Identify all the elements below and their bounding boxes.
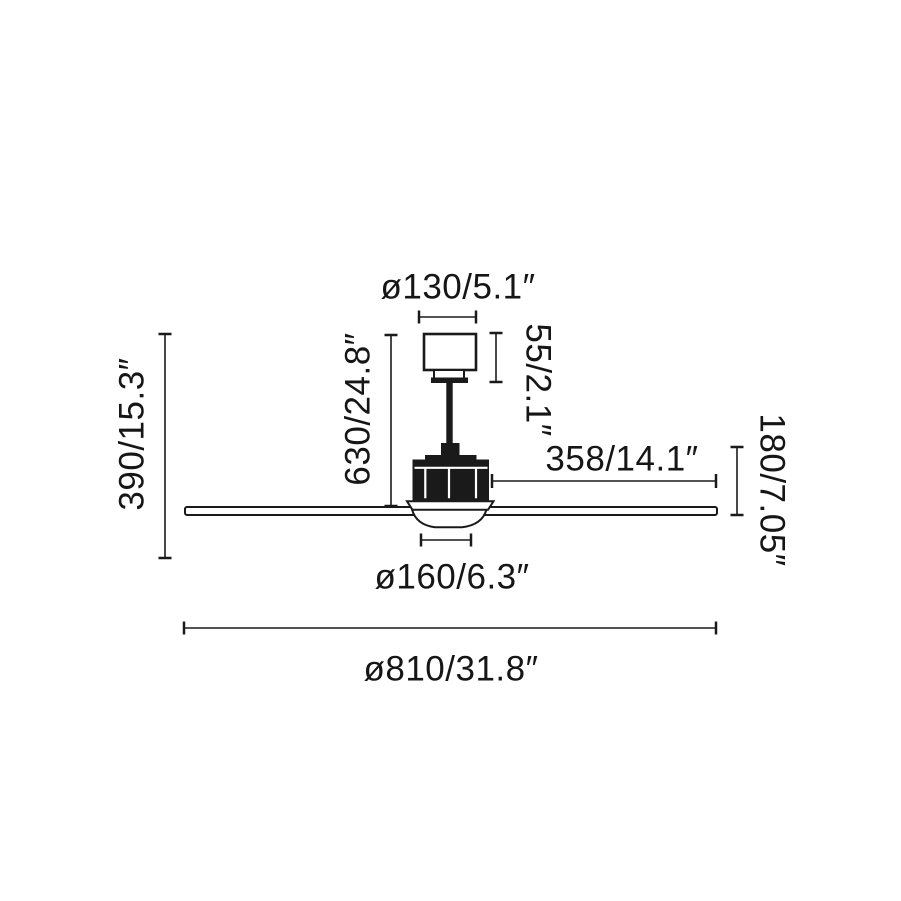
fan-blade-right [470,507,717,515]
light-dome [412,510,487,528]
dim-label-blade-length: 358/14.1″ [545,442,698,477]
canopy-collar [434,370,464,379]
motor-body [413,460,490,502]
diagram-canvas: ø130/5.1″ 55/2.1″ 630/24.8″ 390/15.3″ 35… [0,0,901,901]
down-rod [446,383,452,444]
dim-label-overall-height: 390/15.3″ [115,357,150,510]
dim-label-drop-height: 630/24.8″ [341,332,376,485]
dim-label-light-diameter: ø160/6.3″ [374,560,529,595]
dim-label-canopy-height: 55/2.1″ [521,323,556,436]
rod-coupler [441,443,460,456]
dim-label-body-height: 180/7.05″ [755,413,790,566]
dim-label-canopy-diameter: ø130/5.1″ [380,270,535,305]
mount-flange [407,501,494,510]
dim-label-total-diameter: ø810/31.8″ [363,652,538,687]
ceiling-canopy [424,334,476,370]
fan-blade-left [185,507,430,515]
